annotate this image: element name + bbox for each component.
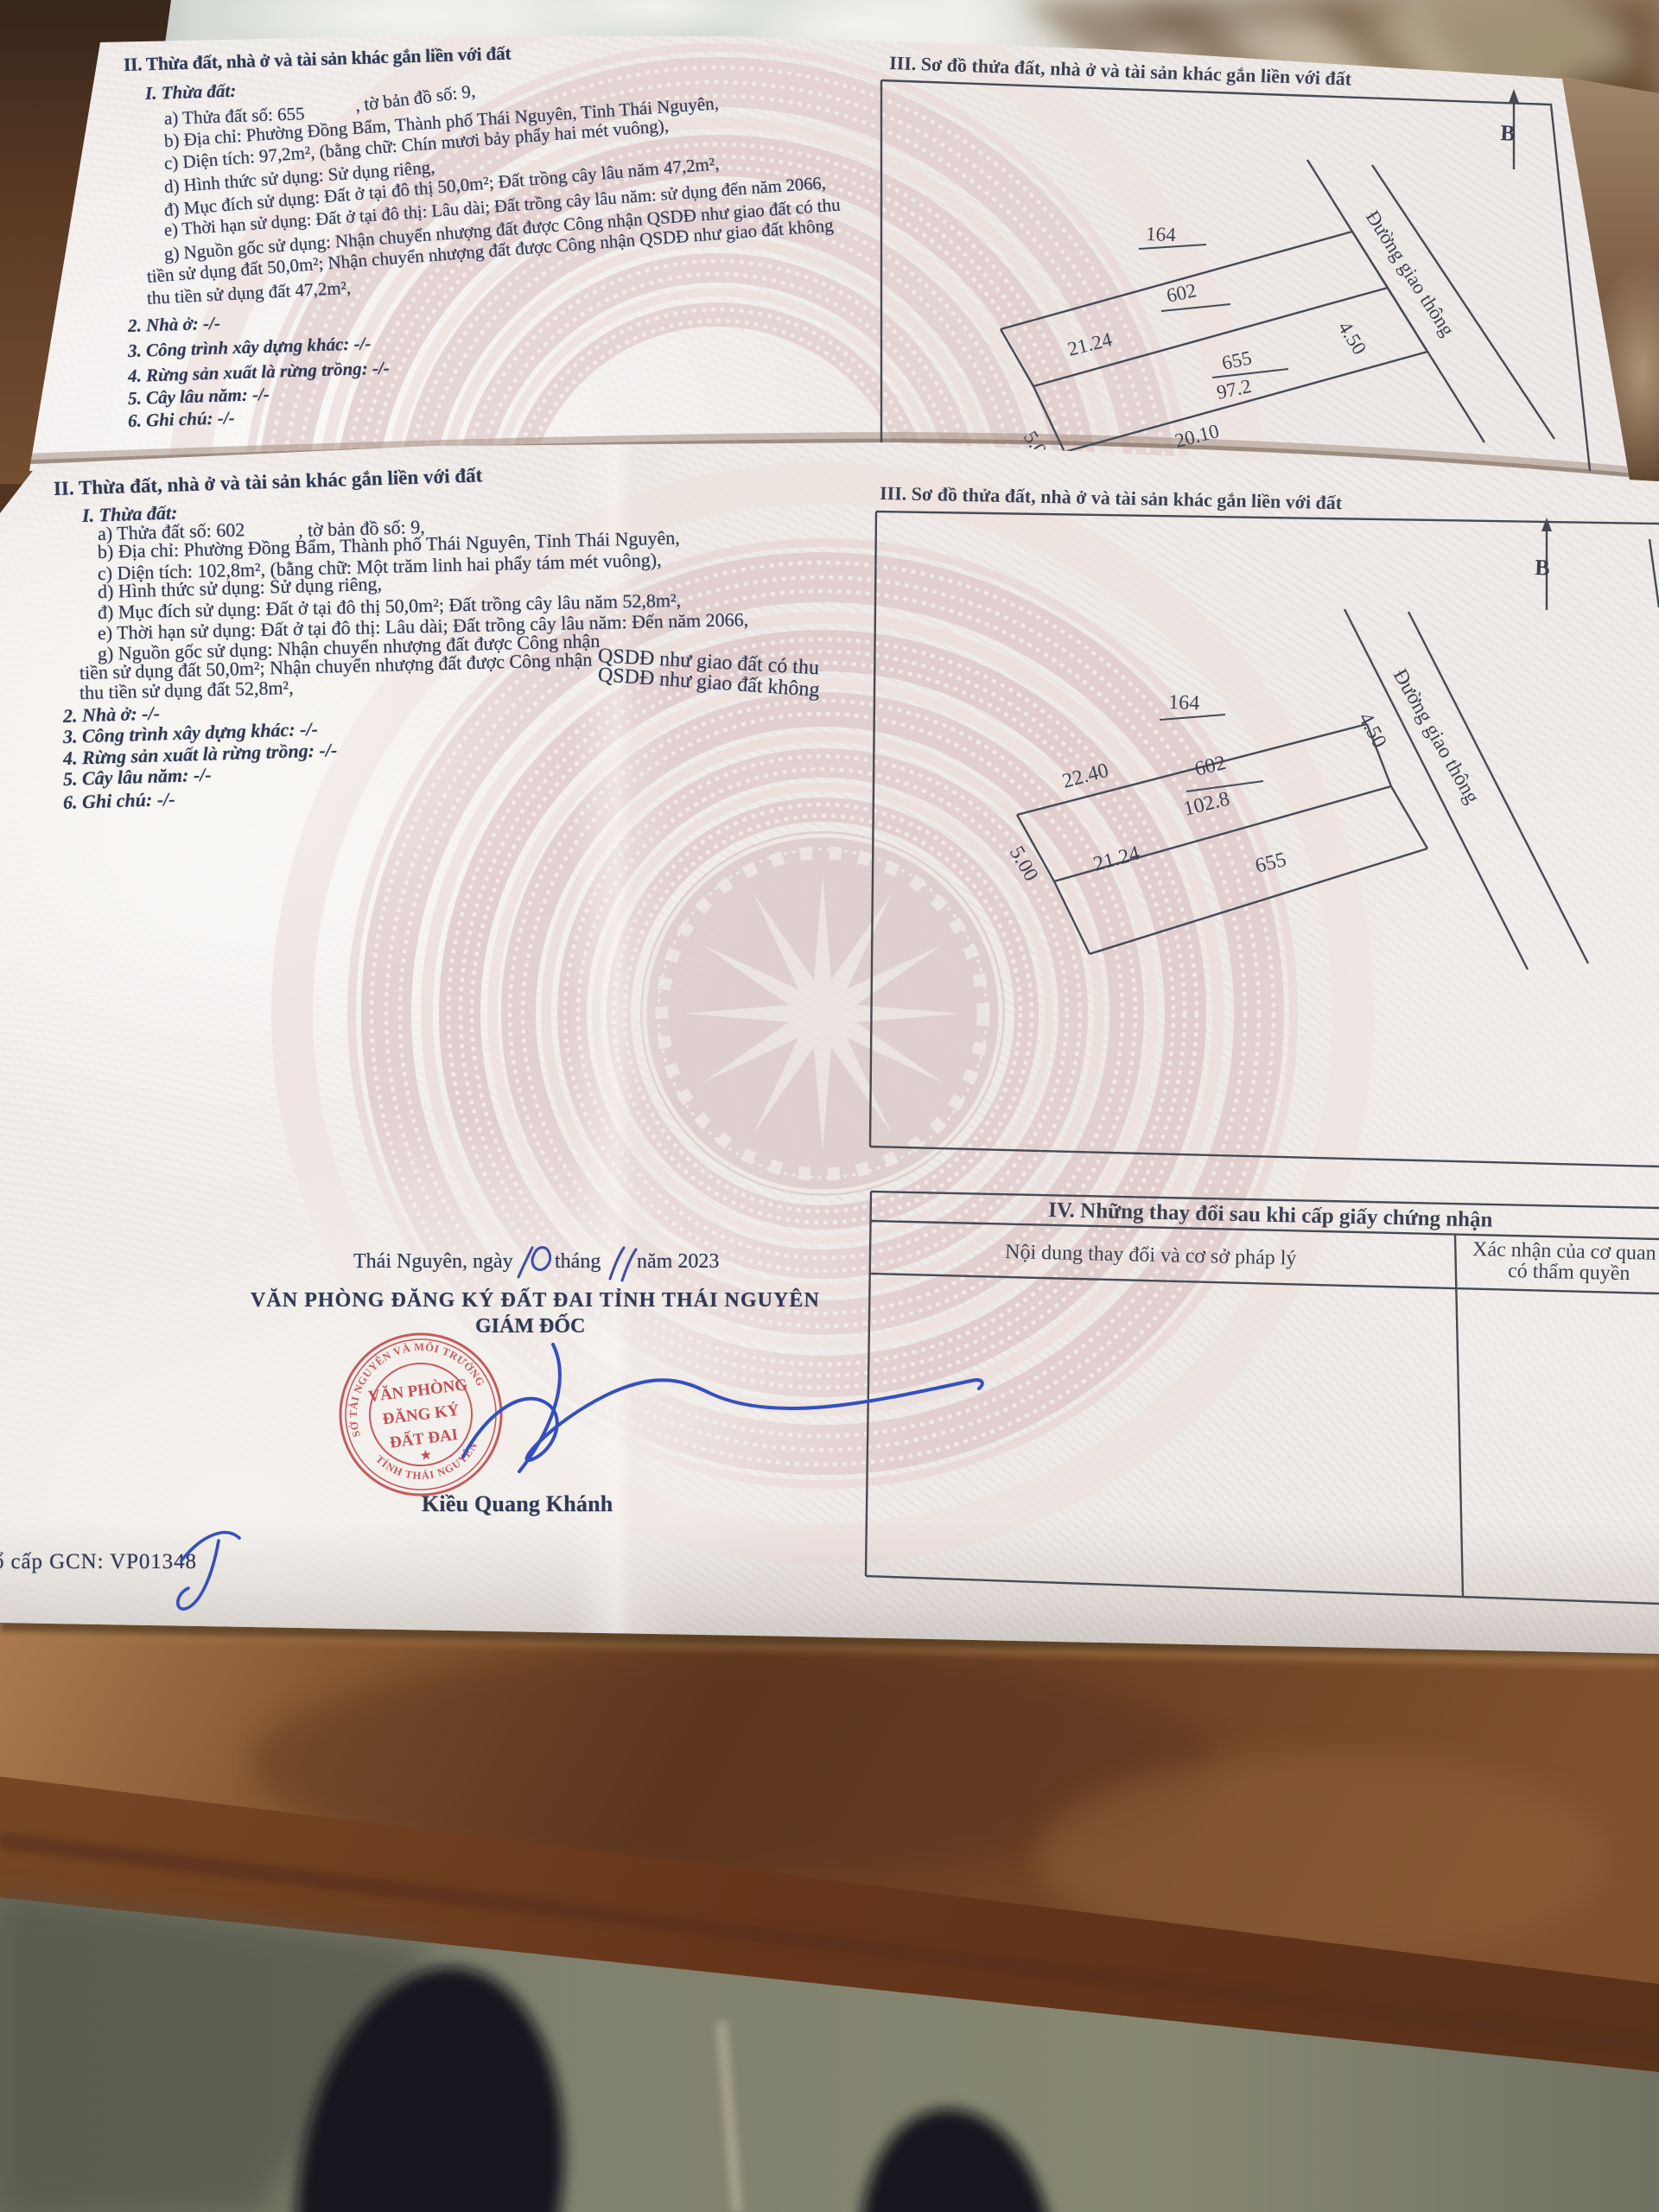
svg-text:★: ★ [420,1448,433,1463]
svg-text:164: 164 [1168,691,1200,715]
svg-text:ĐẤT ĐAI: ĐẤT ĐAI [389,1425,459,1452]
svg-text:ĐĂNG KÝ: ĐĂNG KÝ [381,1401,460,1429]
svg-text:4.50: 4.50 [1354,709,1391,752]
svg-text:B: B [1500,120,1516,146]
svg-text:602: 602 [1192,752,1228,781]
svg-text:97.2: 97.2 [1215,375,1254,404]
svg-text:III. Sơ đồ thửa đất, nhà ở và: III. Sơ đồ thửa đất, nhà ở và tài sản kh… [880,482,1343,513]
svg-text:655: 655 [1253,849,1288,878]
svg-text:164: 164 [1146,223,1177,245]
svg-text:102.8: 102.8 [1181,788,1232,821]
svg-text:21.24: 21.24 [1091,842,1142,876]
svg-text:Nội dung thay đổi và cơ sở phá: Nội dung thay đổi và cơ sở pháp lý [1005,1241,1297,1270]
svg-text:602: 602 [1165,279,1198,307]
svg-text:có thẩm quyền: có thẩm quyền [1508,1260,1630,1285]
svg-text:Đường giao thông: Đường giao thông [1389,665,1484,808]
svg-text:22.40: 22.40 [1060,760,1111,793]
svg-text:20.10: 20.10 [1173,420,1221,452]
svg-text:21.24: 21.24 [1065,328,1115,360]
svg-text:B: B [1535,555,1550,581]
svg-text:655: 655 [1220,346,1254,374]
svg-text:4.50: 4.50 [1334,317,1371,358]
